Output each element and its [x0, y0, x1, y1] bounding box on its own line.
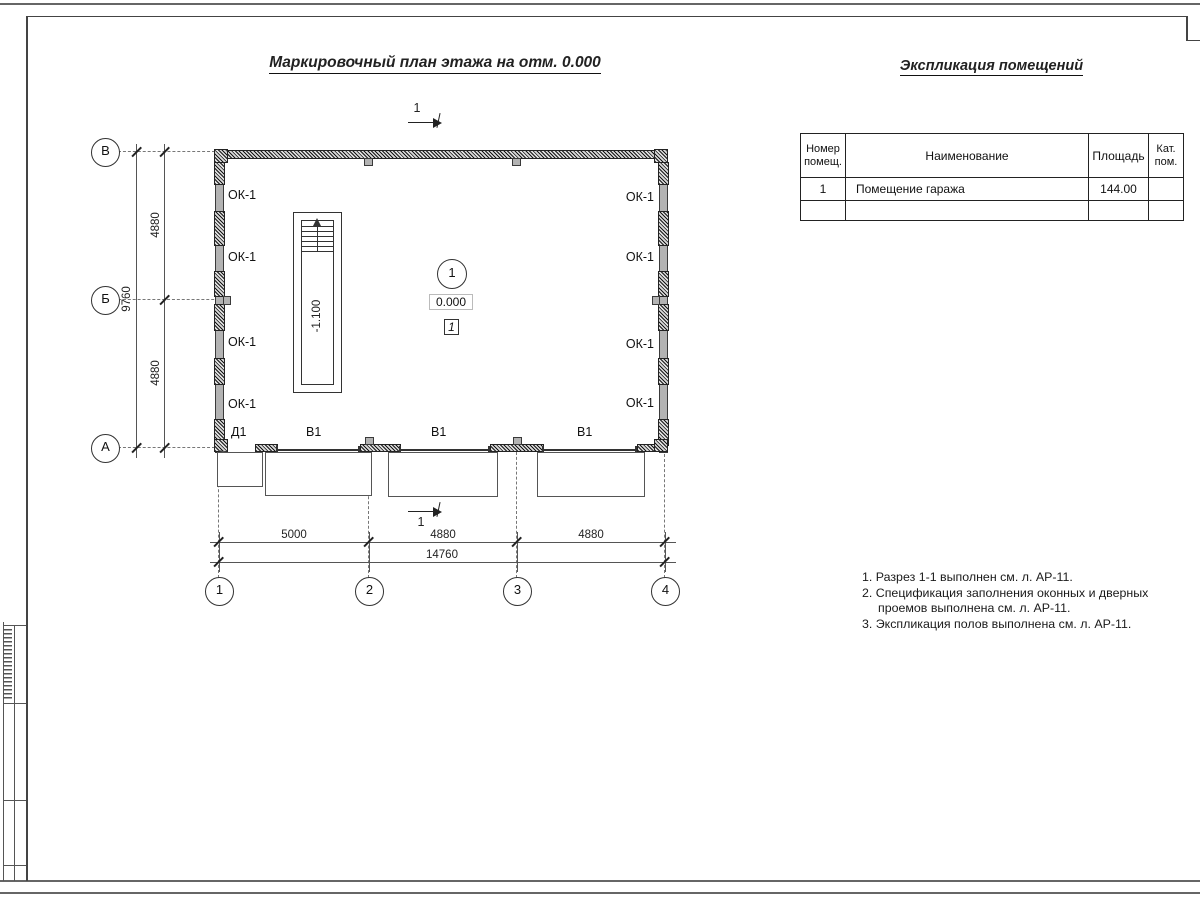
stamp-divider-h4: [3, 865, 26, 866]
axis-line-b-row: [118, 299, 224, 300]
floor-type-marker: 1: [444, 319, 459, 335]
cell-room-category: [1149, 201, 1184, 221]
dim-line-bottom-total: [210, 562, 676, 563]
dim-label-left-span1: 4880: [150, 198, 162, 252]
table-row: [801, 201, 1184, 221]
stamp-divider-h3: [3, 800, 26, 801]
table-title: Экспликация помещений: [800, 57, 1183, 76]
col-header-area: Площадь: [1089, 134, 1149, 178]
pilaster: [652, 296, 660, 305]
window-opening: [214, 271, 225, 297]
section-line-top: [408, 122, 435, 123]
wall-right: [659, 150, 668, 453]
window-opening: [658, 211, 669, 246]
window-label: ОК-1: [620, 250, 654, 264]
cell-room-category: [1149, 178, 1184, 201]
stair-direction-line: [317, 225, 318, 251]
sheet-edge-top: [0, 3, 1200, 5]
frame-left: [26, 16, 28, 881]
cell-room-name: Помещение гаража: [846, 178, 1089, 201]
note-item: 1. Разрез 1-1 выполнен см. л. АР-11.: [862, 570, 1194, 585]
cell-room-area: 144.00: [1089, 178, 1149, 201]
axis-bubble-row-b: Б: [91, 286, 120, 315]
stamp-divider-v: [14, 625, 15, 881]
axis-bubble-row-a: А: [91, 434, 120, 463]
notes-list: 1. Разрез 1-1 выполнен см. л. АР-11. 2. …: [862, 570, 1194, 633]
frame-right-notch-v: [1186, 16, 1188, 41]
gate-leaf: [400, 449, 490, 451]
gate-ramp: [388, 452, 498, 497]
explication-table: Номер помещ. Наименование Площадь Кат. п…: [800, 133, 1184, 221]
table-title-text: Экспликация помещений: [900, 58, 1083, 76]
gate-ramp: [537, 452, 645, 497]
dim-label-left-span2: 4880: [150, 346, 162, 400]
cell-room-number: [801, 201, 846, 221]
note-item: 2. Спецификация заполнения оконных и две…: [862, 586, 1194, 616]
note-item: 3. Экспликация полов выполнена см. л. АР…: [862, 617, 1194, 632]
sheet-edge-bottom: [0, 892, 1200, 894]
level-mark: 0.000: [429, 294, 473, 310]
wall-pier: [255, 444, 278, 452]
stair-step: [302, 251, 333, 252]
frame-top: [26, 16, 1187, 17]
dim-label-bottom-total: 14760: [412, 549, 472, 561]
section-label-top: 1: [410, 101, 424, 115]
gate-ramp: [265, 452, 372, 496]
plan-title-text: Маркировочный план этажа на отм. 0.000: [269, 54, 601, 74]
gate-leaf: [543, 449, 637, 451]
dim-label-bottom-span3: 4880: [561, 529, 621, 541]
door-label: Д1: [231, 425, 246, 439]
cell-room-number: 1: [801, 178, 846, 201]
pilaster: [364, 158, 373, 166]
window-opening: [658, 162, 669, 185]
gate-label: В1: [577, 425, 592, 439]
section-line-bottom: [408, 511, 435, 512]
pilaster: [223, 296, 231, 305]
cell-room-area: [1089, 201, 1149, 221]
pilaster: [365, 437, 374, 445]
wall-corner: [214, 149, 228, 163]
stamp-divider-h1: [3, 625, 26, 626]
frame-right-notch-h: [1186, 40, 1200, 41]
table-row: 1 Помещение гаража 144.00: [801, 178, 1184, 201]
col-header-category: Кат. пом.: [1149, 134, 1184, 178]
axis-line-a-row: [118, 447, 215, 448]
cell-room-name: [846, 201, 1089, 221]
section-label-bottom: 1: [414, 515, 428, 529]
window-opening: [214, 162, 225, 185]
window-label: ОК-1: [620, 396, 654, 410]
stamp-divider-h2: [3, 703, 26, 704]
col-header-room-number: Номер помещ.: [801, 134, 846, 178]
col-header-name: Наименование: [846, 134, 1089, 178]
wall-pier: [490, 444, 544, 452]
window-label: ОК-1: [228, 188, 256, 202]
wall-corner: [654, 439, 668, 452]
dim-line-left-total: [136, 144, 137, 458]
gate-label: В1: [306, 425, 321, 439]
axis-line-v-row: [118, 151, 215, 152]
window-label: ОК-1: [228, 397, 256, 411]
dim-label-left-total: 9760: [121, 272, 133, 326]
pilaster: [512, 158, 521, 166]
window-label: ОК-1: [228, 250, 256, 264]
frame-bottom: [0, 880, 1200, 882]
window-opening: [214, 358, 225, 385]
axis-bubble-col-1: 1: [205, 577, 234, 606]
window-label: ОК-1: [228, 335, 256, 349]
stamp-microtext: [4, 629, 12, 699]
dim-label-bottom-span1: 5000: [264, 529, 324, 541]
window-opening: [658, 304, 669, 331]
axis-bubble-row-v: В: [91, 138, 120, 167]
pilaster: [513, 437, 522, 445]
room-number-marker: 1: [437, 259, 467, 289]
window-opening: [214, 304, 225, 331]
dim-label-bottom-span2: 4880: [413, 529, 473, 541]
stair-direction-arrow: [313, 218, 321, 226]
wall-pier: [360, 444, 401, 452]
stair-level-label: -1.100: [311, 289, 325, 343]
gate-leaf: [277, 449, 360, 451]
window-opening: [658, 358, 669, 385]
axis-bubble-col-3: 3: [503, 577, 532, 606]
window-opening: [214, 211, 225, 246]
wall-corner: [654, 149, 668, 163]
window-opening: [658, 271, 669, 297]
wall-top: [215, 150, 668, 159]
door-porch: [217, 452, 263, 487]
window-label: ОК-1: [620, 337, 654, 351]
gate-label: В1: [431, 425, 446, 439]
dim-line-bottom-spans: [210, 542, 676, 543]
axis-bubble-col-4: 4: [651, 577, 680, 606]
window-label: ОК-1: [620, 190, 654, 204]
plan-title: Маркировочный план этажа на отм. 0.000: [200, 54, 670, 74]
axis-bubble-col-2: 2: [355, 577, 384, 606]
drawing-sheet: Маркировочный план этажа на отм. 0.000 Э…: [0, 0, 1200, 900]
